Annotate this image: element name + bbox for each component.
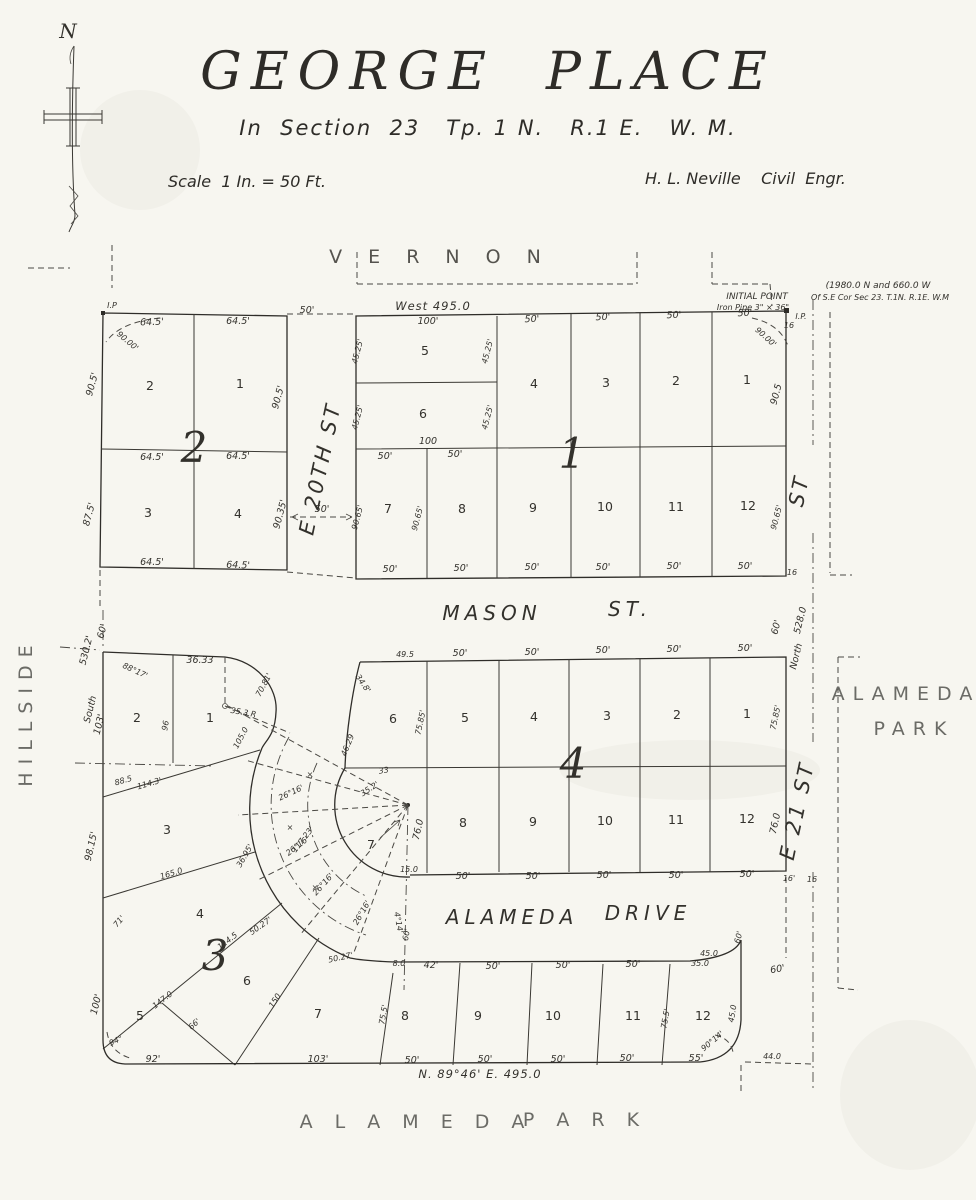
label-dim8: 46.29 — [339, 733, 356, 758]
label-dim: 50' — [596, 645, 611, 656]
label-dim8: 71' — [112, 914, 127, 929]
label-dim8: 117.23' — [290, 825, 316, 854]
label-dim8: I.P — [107, 301, 117, 310]
label-dim: 50' — [453, 648, 468, 659]
label-park: PARK — [874, 718, 955, 740]
label-lot: 1 — [236, 376, 244, 391]
label-dim: 50' — [524, 314, 539, 326]
label-dim8: 88°17' — [121, 661, 149, 680]
label-dim: 50' — [300, 305, 315, 316]
label-lot: 6 — [243, 973, 251, 988]
label-dim: 530.2' — [78, 635, 96, 667]
label-dim: 50' — [454, 563, 469, 574]
label-dim8: 75.85' — [414, 709, 428, 735]
label-stv: E 20TH ST — [294, 400, 346, 537]
label-dim: 64.5' — [140, 317, 164, 329]
label-dim8: 45.25' — [350, 404, 365, 431]
map-annotations: NV E R N O NWest 495.0INITIAL POINTIron … — [15, 19, 976, 1133]
label-dim: 50' — [456, 871, 471, 882]
label-lot: 10 — [597, 499, 613, 514]
label-lot: 3 — [144, 505, 152, 520]
label-dim8: 45.0 — [700, 949, 718, 958]
label-dim8: 94° — [108, 1034, 125, 1048]
label-dim: 50' — [738, 643, 753, 654]
label-dim: 50' — [556, 960, 571, 971]
label-dim8: × — [287, 823, 294, 832]
label-dim: 100' — [418, 316, 439, 327]
label-dim8: 75.85' — [769, 704, 783, 730]
label-dim8: 165.0 — [159, 866, 184, 881]
label-lot: 4 — [234, 506, 242, 521]
label-lot: 1 — [206, 710, 214, 725]
label-dim: 50' — [738, 561, 753, 572]
label-dim8: 8.0 — [393, 959, 406, 968]
label-dim8: 75.5' — [659, 1008, 671, 1029]
label-dim8: 88.5 — [114, 774, 134, 788]
label-dim8: 35.0 — [691, 959, 709, 968]
label-lot: 2 — [133, 710, 141, 725]
label-park: A L A M E D A — [300, 1111, 533, 1133]
label-dim: 60' — [769, 619, 783, 636]
label-st: DRIVE — [605, 901, 692, 925]
label-lot: 4 — [530, 709, 538, 724]
label-dim: 50' — [666, 310, 681, 322]
label-dim: 50' — [620, 1053, 635, 1064]
label-lot: 2 — [146, 378, 154, 393]
label-dim8: 96 — [160, 720, 171, 732]
label-bearing: West 495.0 — [395, 299, 471, 313]
label-dim8: 16 — [784, 321, 794, 330]
label-dim: 64.5' — [226, 560, 250, 572]
label-dim: 55' — [689, 1053, 704, 1064]
label-dim8: Of S.E Cor Sec 23. T.1N. R.1E. W.M — [811, 293, 949, 302]
label-lot: 1 — [743, 372, 751, 387]
label-lot: 9 — [529, 500, 537, 515]
label-lot: 8 — [459, 815, 467, 830]
label-dim8: 16 — [787, 568, 797, 577]
label-dim8: 66' — [187, 1017, 202, 1032]
label-dim: 50' — [405, 1055, 420, 1066]
label-lot: 12 — [739, 811, 755, 826]
label-dim: 100 — [419, 436, 437, 447]
label-park: ALAMEDA — [832, 683, 976, 705]
label-lot: 12 — [740, 498, 756, 513]
label-dim: North — [788, 642, 805, 670]
label-dim8: 90.00' — [753, 325, 778, 348]
label-dim8: 15.0 — [400, 865, 418, 874]
label-dim8: × — [312, 883, 319, 892]
label-dim8: 16 — [807, 875, 817, 884]
label-lot: 4 — [530, 376, 538, 391]
label-dim8: 90.65' — [350, 504, 365, 531]
label-st: MASON — [442, 601, 541, 625]
compass-n-label: N — [58, 19, 78, 43]
label-dim: 64.5' — [226, 316, 250, 327]
label-dim8: 45.25' — [350, 338, 365, 365]
label-dim8: 35.2' — [359, 780, 381, 798]
label-dim: 50' — [737, 308, 752, 320]
label-lot: 2 — [673, 707, 681, 722]
label-dim: 50' — [667, 561, 682, 572]
label-dim8: × — [307, 770, 314, 779]
plat-drawing: NV E R N O NWest 495.0INITIAL POINTIron … — [0, 0, 976, 1200]
label-dim: 50' — [525, 647, 540, 658]
label-lot: 6 — [419, 406, 427, 421]
label-dim8: 114.3' — [136, 776, 163, 792]
culdesac-radial-lines — [228, 706, 410, 990]
label-dim8: 36.95' — [235, 843, 255, 869]
label-dim8: 60' — [401, 928, 412, 942]
label-dim: 50' — [551, 1054, 566, 1065]
label-blk: 1 — [559, 429, 586, 478]
label-dim8: 26°16' — [277, 783, 305, 802]
label-dim8: 70.81' — [254, 672, 274, 698]
label-dim: 50' — [315, 504, 330, 515]
label-dim8: 45.0 — [727, 1004, 739, 1023]
label-st: ST. — [608, 597, 652, 621]
label-dim: 50' — [378, 451, 393, 462]
label-dim8: 34.8' — [354, 673, 373, 695]
label-dim: 50' — [486, 961, 501, 972]
label-dim8: 33 — [378, 765, 389, 775]
label-blk: 4 — [559, 739, 587, 788]
label-dim8: 45.25' — [480, 338, 495, 365]
label-dim: 87.5' — [81, 501, 98, 527]
north-arrow-icon — [44, 46, 102, 232]
label-dim: 98.15' — [83, 831, 100, 863]
label-dim8: 50.27' — [248, 915, 274, 937]
label-dim8: 90.00' — [115, 330, 140, 353]
label-dim8: 60' — [733, 930, 745, 944]
label-dim8: 75.5' — [377, 1004, 389, 1025]
label-dim: 36.33 — [186, 655, 213, 666]
label-dim: 90.5' — [84, 371, 101, 397]
label-dim: 76.0 — [411, 818, 426, 841]
label-dim8: I.P. — [795, 312, 806, 321]
label-lot: 7 — [384, 501, 392, 516]
plat-map: GEORGE PLACE In Section 23 Tp. 1 N. R.1 … — [0, 0, 976, 1200]
label-park: HILLSIDE — [15, 637, 37, 786]
label-lot: 3 — [603, 708, 611, 723]
label-dim8: Iron Pipe 3" × 36" — [717, 303, 789, 312]
label-lot: 1 — [743, 706, 751, 721]
label-dim: 50' — [597, 870, 612, 881]
label-stv: ST — [784, 472, 814, 508]
label-dim: 50' — [478, 1054, 493, 1065]
label-lot: 5 — [136, 1008, 144, 1023]
label-blk: 2 — [180, 423, 208, 472]
label-lot: 10 — [545, 1008, 561, 1023]
label-vern: V E R N O N — [329, 246, 551, 268]
label-dim: 50' — [626, 959, 641, 970]
label-dim8: 150 — [267, 992, 283, 1010]
label-dim: 64.5' — [140, 452, 164, 463]
label-lot: 10 — [597, 813, 613, 828]
label-dim: 50' — [525, 562, 540, 573]
label-dim: 50' — [526, 871, 541, 882]
label-bearing: N. 89°46' E. 495.0 — [418, 1067, 541, 1081]
label-dim8: 26°16' — [351, 899, 372, 927]
label-stv: E 21 ST — [775, 759, 819, 862]
label-lot: 8 — [401, 1008, 409, 1023]
label-lot: 7 — [314, 1006, 322, 1021]
label-dim8: 90.65' — [769, 504, 784, 531]
label-lot: 11 — [625, 1008, 641, 1023]
label-dim8: 147.0 — [151, 989, 175, 1010]
label-dim: 100' — [89, 993, 105, 1016]
label-park: P A R K — [523, 1109, 647, 1131]
label-dim: 50' — [448, 449, 463, 460]
label-lot: 6 — [389, 711, 397, 726]
label-lot: 2 — [672, 373, 680, 388]
label-note: (1980.0 N and 660.0 W — [826, 281, 932, 291]
label-st: ALAMEDA — [444, 905, 578, 929]
label-dim: 50' — [596, 562, 611, 573]
label-lot: 11 — [668, 812, 684, 827]
label-lot: 7 — [367, 837, 375, 852]
label-dim: 103' — [308, 1054, 329, 1065]
label-dim: 64.5' — [140, 557, 164, 568]
label-dim: 50' — [669, 870, 684, 881]
label-lot: 8 — [458, 501, 466, 516]
label-dim: 90.5' — [270, 384, 287, 410]
label-blk: 3 — [202, 931, 229, 980]
label-dim8: 35.3 R — [230, 706, 257, 719]
label-dim8: 49.5 — [396, 650, 414, 659]
label-dim: 42' — [424, 960, 439, 971]
label-dim: 60' — [95, 623, 109, 640]
label-lot: 5 — [421, 343, 429, 358]
label-lot: 12 — [695, 1008, 711, 1023]
label-dim: 90.5 — [769, 383, 785, 406]
label-dim8: 16' — [783, 874, 795, 883]
label-dim: 50' — [667, 644, 682, 655]
label-lot: 3 — [163, 822, 171, 837]
label-dim: 92' — [146, 1054, 161, 1065]
label-dim8: 105.0 — [231, 726, 250, 750]
label-lot: 9 — [529, 814, 537, 829]
label-dim: 50' — [383, 564, 398, 575]
label-lot: 9 — [474, 1008, 482, 1023]
label-dim8: 44.0 — [763, 1052, 781, 1061]
label-dim: 528.0 — [792, 606, 809, 635]
label-note: INITIAL POINT — [726, 292, 789, 302]
label-dim: 60' — [769, 963, 785, 976]
label-dim: 64.5' — [226, 451, 250, 462]
label-dim8: 45.25' — [480, 404, 495, 431]
label-dim: 50' — [595, 312, 610, 324]
label-lot: 11 — [668, 499, 684, 514]
label-lot: 5 — [461, 710, 469, 725]
label-dim8: 90°14' — [699, 1029, 725, 1053]
label-dim: 50' — [740, 869, 755, 880]
label-dim8: 90.65' — [410, 505, 425, 532]
label-lot: 4 — [196, 906, 204, 921]
label-dim8: 50.27' — [327, 951, 353, 965]
label-lot: 3 — [602, 375, 610, 390]
